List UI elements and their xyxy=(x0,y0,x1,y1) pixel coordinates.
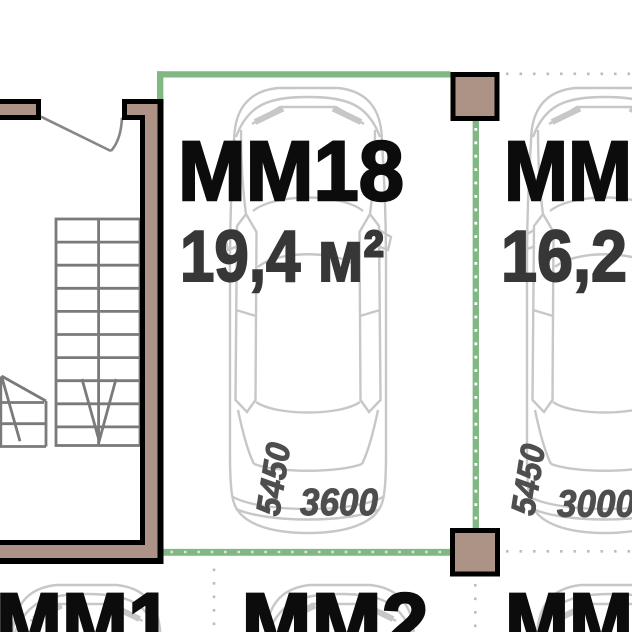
svg-text:3600: 3600 xyxy=(300,482,378,524)
svg-text:5450: 5450 xyxy=(504,442,553,518)
svg-text:16,2: 16,2 xyxy=(501,216,627,297)
svg-text:MM2: MM2 xyxy=(242,576,429,632)
svg-text:MM: MM xyxy=(505,576,632,632)
svg-text:5450: 5450 xyxy=(249,440,298,518)
svg-text:MM18: MM18 xyxy=(178,124,404,218)
svg-text:MM1: MM1 xyxy=(0,576,172,632)
svg-text:19,4 м²: 19,4 м² xyxy=(180,216,384,297)
svg-text:MM: MM xyxy=(504,124,632,218)
svg-text:3000: 3000 xyxy=(557,484,632,526)
